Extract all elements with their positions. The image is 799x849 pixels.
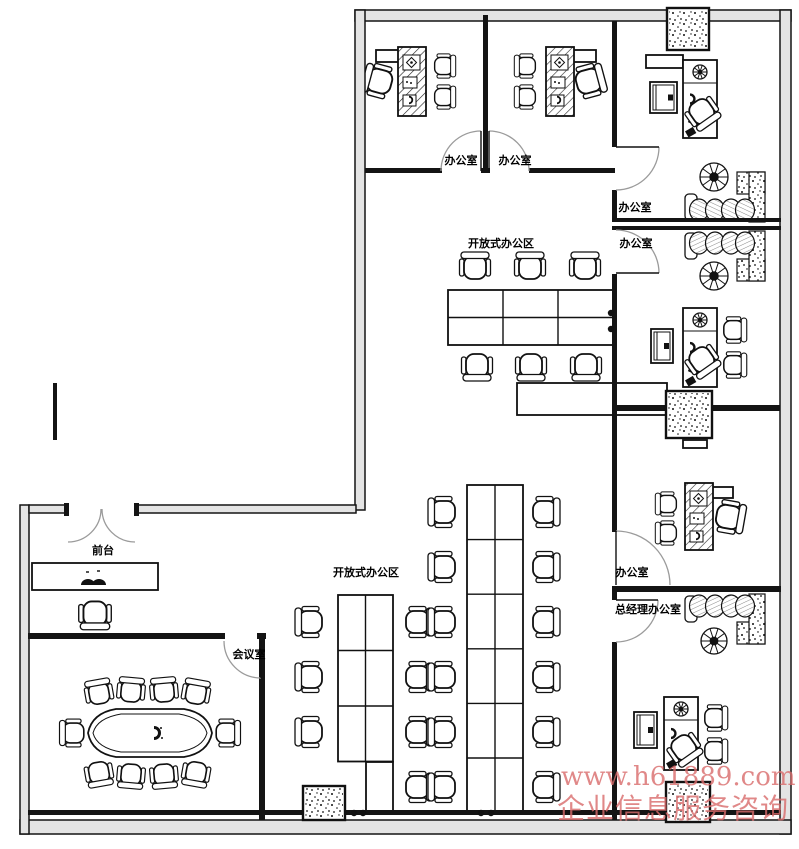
chair [428, 717, 455, 748]
chair [514, 54, 535, 78]
room-label: 前台 [92, 543, 114, 557]
cabinet-shelf [646, 55, 683, 68]
chair [83, 760, 115, 789]
door-arc [102, 509, 135, 542]
interior-wall [257, 633, 266, 639]
desk-grid [448, 290, 613, 345]
room-label: 开放式办公区 [333, 565, 399, 579]
room-label: 开放式办公区 [468, 236, 534, 250]
column [666, 782, 710, 822]
room-label: 办公室 [445, 153, 478, 167]
door [102, 509, 135, 542]
chair [180, 677, 212, 706]
furniture [32, 47, 765, 813]
chair [573, 61, 609, 100]
plant-icon [693, 65, 707, 79]
marker-dot [351, 810, 357, 816]
chair [533, 607, 560, 638]
chair [516, 354, 547, 381]
room-label: 总经理办公室 [615, 602, 681, 616]
conference-table [88, 709, 212, 757]
room-label: 办公室 [499, 153, 532, 167]
desk-grid [338, 595, 393, 762]
chair [571, 354, 602, 381]
chair [705, 738, 728, 764]
chair [533, 662, 560, 693]
side-cabinet [650, 82, 677, 113]
marker-dot [608, 326, 614, 332]
plant-icon [701, 628, 727, 654]
interior-wall [529, 168, 615, 173]
chair [533, 497, 560, 528]
interior-wall [612, 642, 617, 820]
chair [462, 354, 493, 381]
marker-dot [360, 810, 366, 816]
interior-wall [612, 218, 781, 222]
chair [116, 763, 146, 790]
chair [533, 717, 560, 748]
interior-wall [134, 503, 139, 516]
room-label: 办公室 [616, 565, 649, 579]
side-cabinet [634, 712, 657, 748]
chair [714, 499, 748, 536]
marker-dot [608, 310, 614, 316]
reception-counter [32, 563, 158, 590]
chair [180, 760, 212, 789]
chair [428, 607, 455, 638]
exterior-wall [135, 505, 356, 513]
chair [533, 552, 560, 583]
interior-wall [365, 168, 442, 173]
desk-grid [467, 485, 523, 813]
exterior-wall [355, 10, 791, 21]
chair [295, 607, 322, 638]
interior-wall [612, 21, 617, 147]
chair [435, 85, 456, 109]
chair [295, 717, 322, 748]
marker-dot [488, 810, 494, 816]
plant-icon [700, 163, 728, 191]
interior-wall [612, 592, 617, 600]
chair [428, 772, 455, 803]
interior-wall [612, 190, 617, 218]
side-cabinet [651, 329, 673, 363]
door [616, 147, 659, 190]
chair [655, 521, 676, 545]
door-arc [616, 147, 659, 190]
exterior-wall [20, 505, 29, 834]
column [303, 786, 345, 820]
chair [216, 719, 240, 747]
exterior-wall [355, 10, 365, 510]
interior-wall [259, 639, 265, 820]
chair [295, 662, 322, 693]
chair [428, 552, 455, 583]
chair [149, 763, 179, 790]
room-label: 办公室 [620, 236, 653, 250]
marker-dot [478, 810, 484, 816]
interior-wall [53, 383, 57, 440]
column [666, 391, 712, 438]
plant-icon [674, 702, 688, 716]
interior-wall [483, 15, 488, 171]
floor-plan-canvas: 办公室办公室办公室办公室开放式办公区开放式办公区办公室总经理办公室会议室前台 [0, 0, 799, 849]
chair [60, 719, 84, 747]
interior-wall [28, 633, 225, 639]
chair [149, 676, 179, 703]
chair [705, 705, 728, 731]
chair [724, 317, 747, 343]
chair [83, 677, 115, 706]
chair [533, 772, 560, 803]
chair [428, 662, 455, 693]
room-label: 办公室 [619, 200, 652, 214]
plant-icon [693, 313, 707, 327]
chair [515, 252, 546, 279]
interior-wall [612, 226, 781, 230]
door-arc [68, 509, 101, 542]
chair [435, 54, 456, 78]
interior-wall [612, 586, 781, 592]
chair [460, 252, 491, 279]
plant-icon [700, 262, 728, 290]
column [667, 8, 709, 50]
chair [116, 676, 146, 703]
floor-plan: 办公室办公室办公室办公室开放式办公区开放式办公区办公室总经理办公室会议室前台 w… [0, 0, 799, 849]
door [68, 509, 101, 542]
chair [79, 601, 112, 629]
chair [428, 497, 455, 528]
cabinet-shelf [683, 440, 707, 448]
exterior-wall [780, 10, 791, 834]
interior-wall [64, 503, 69, 516]
chair [655, 492, 676, 516]
chair [724, 352, 747, 378]
desk-grid [366, 762, 393, 812]
chair [514, 85, 535, 109]
chair [570, 252, 601, 279]
room-label: 会议室 [233, 647, 266, 661]
exterior-wall [29, 505, 68, 513]
